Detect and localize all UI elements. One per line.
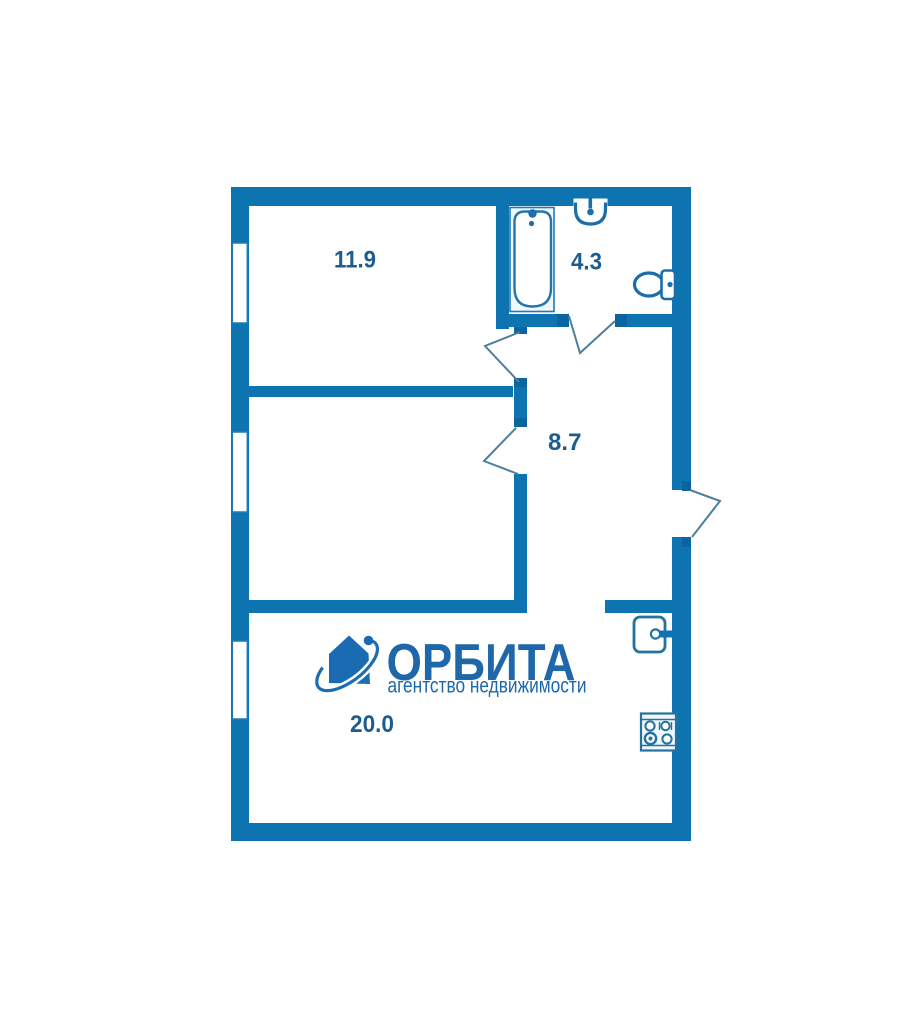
svg-text:20.0: 20.0: [350, 711, 394, 738]
svg-text:11.9: 11.9: [334, 247, 376, 274]
svg-text:8.7: 8.7: [548, 429, 582, 456]
svg-text:агентство недвижимости: агентство недвижимости: [388, 675, 587, 698]
svg-text:4.3: 4.3: [571, 249, 602, 276]
